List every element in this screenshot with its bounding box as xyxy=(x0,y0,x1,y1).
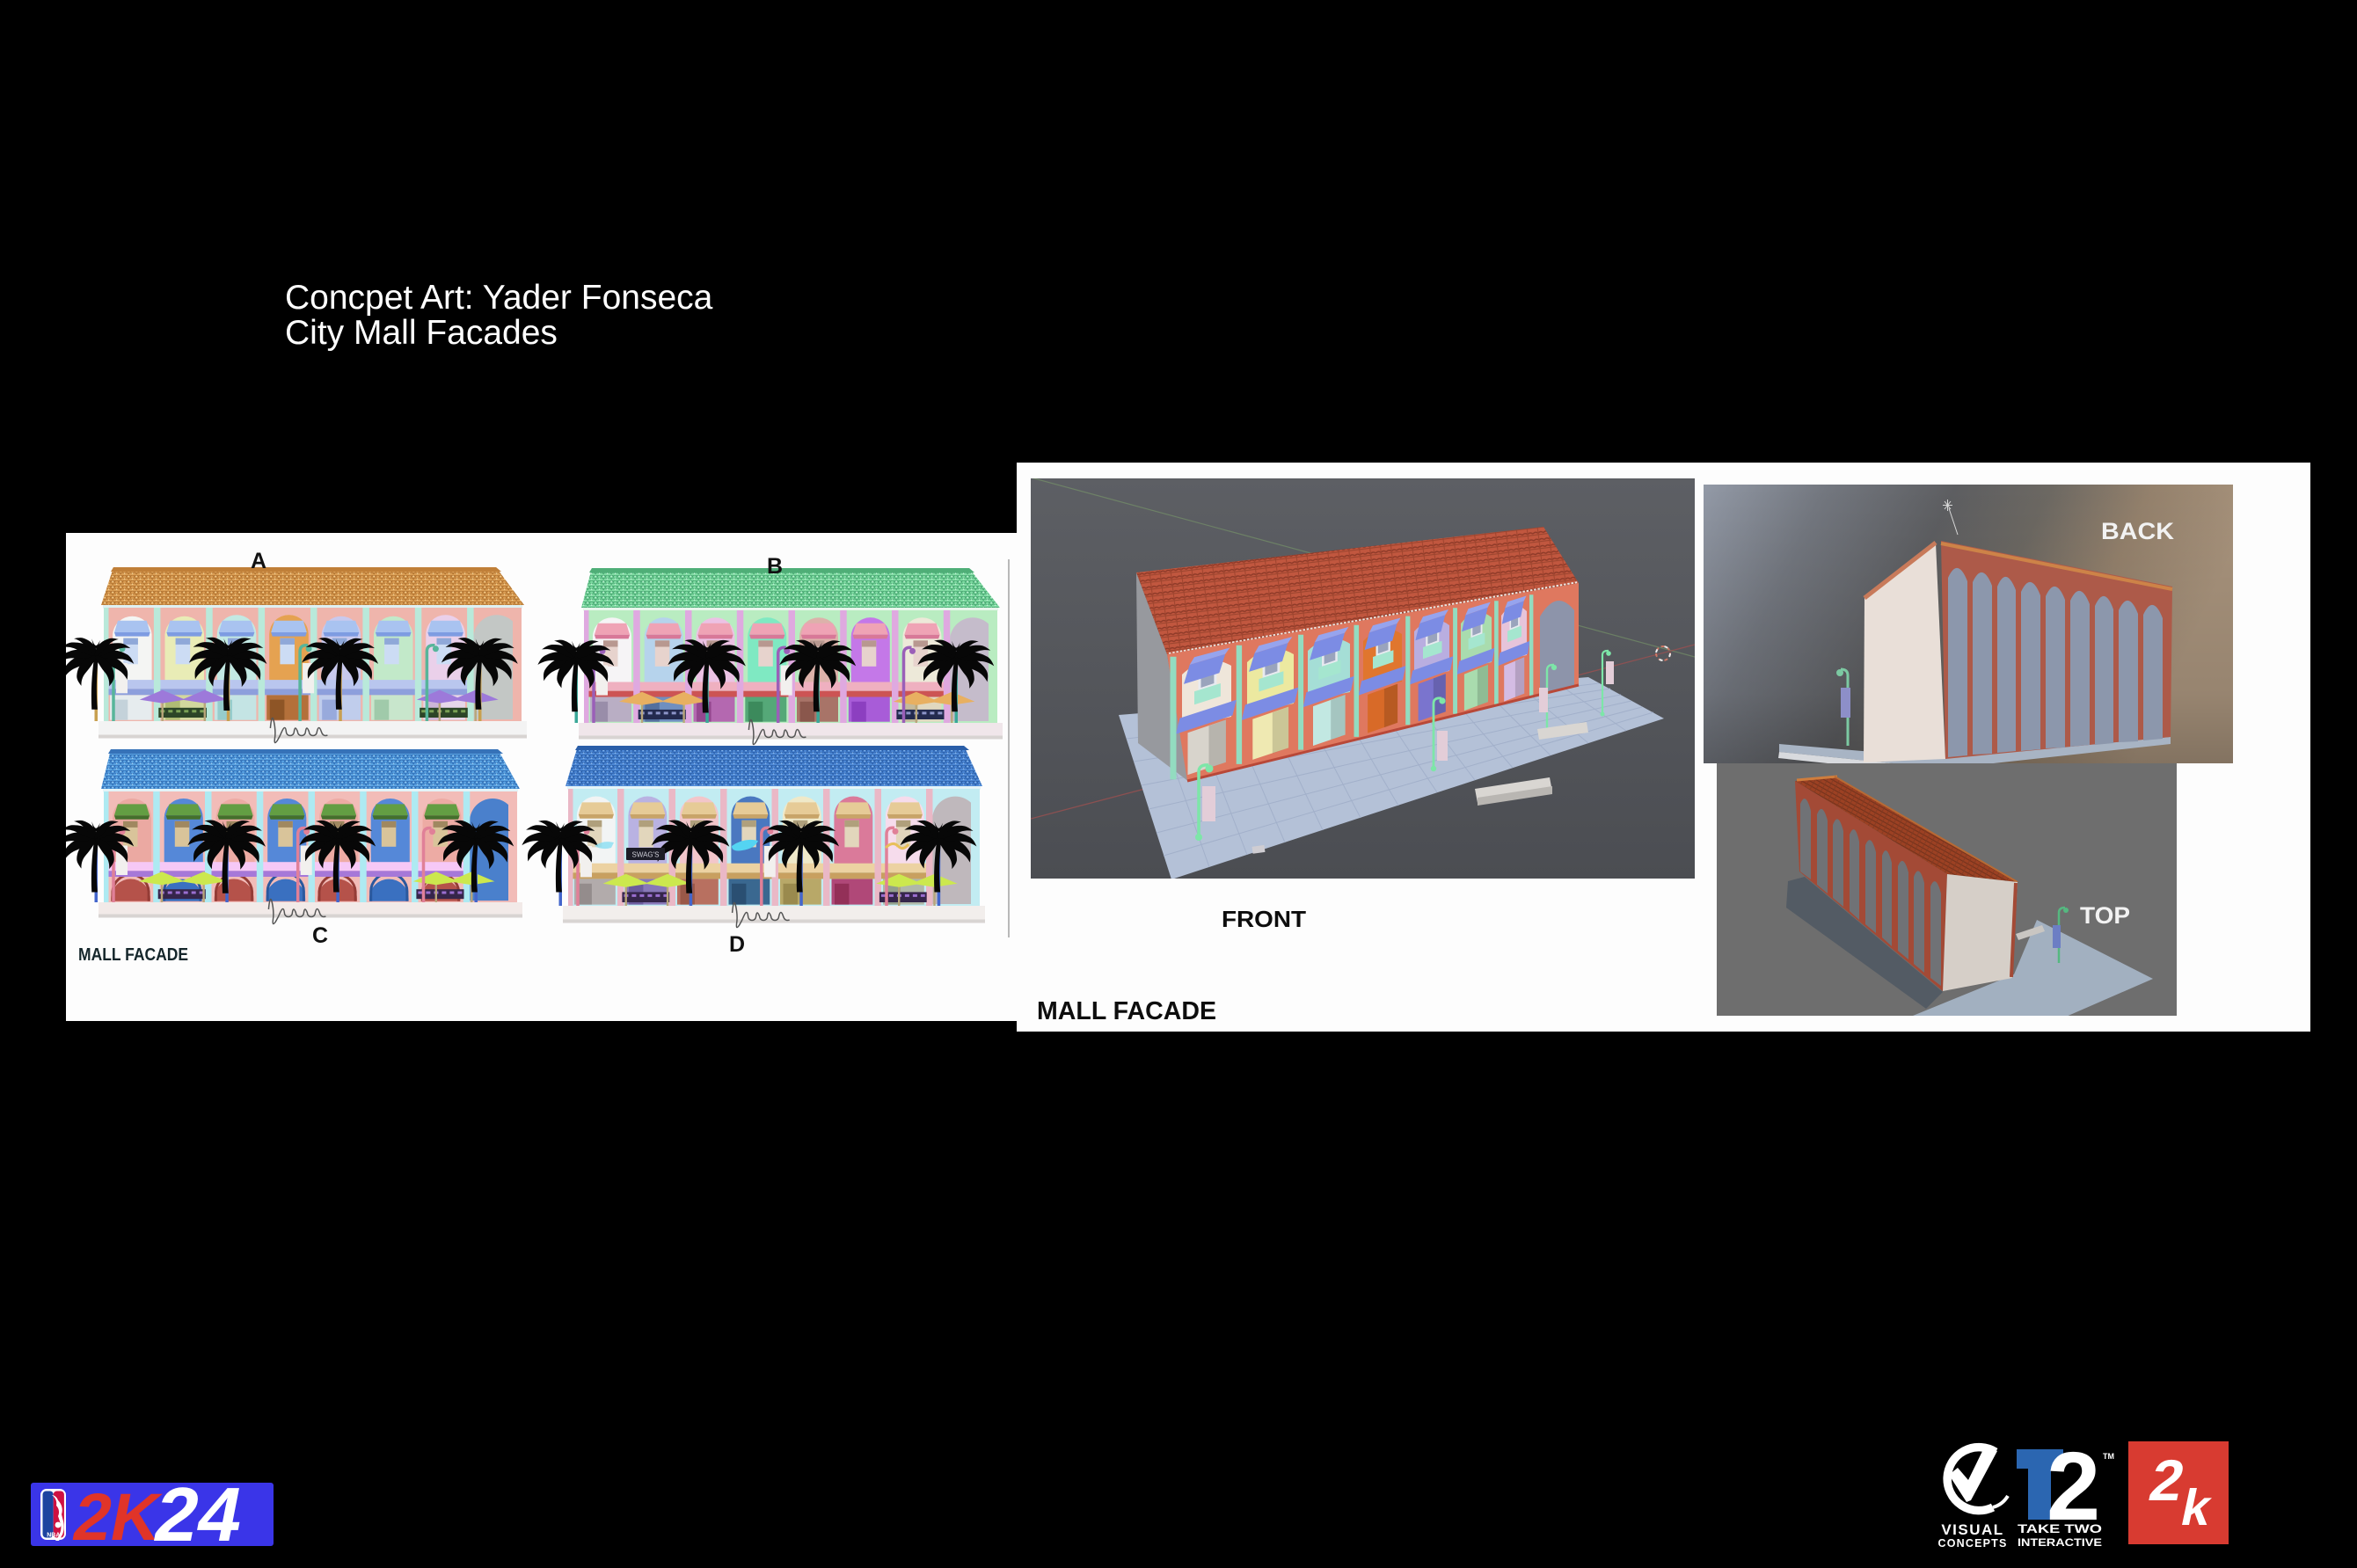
svg-text:TAKE TWO: TAKE TWO xyxy=(2018,1521,2102,1535)
svg-text:A: A xyxy=(251,549,266,573)
svg-text:SWAG'S: SWAG'S xyxy=(631,851,659,859)
svg-text:VISUAL: VISUAL xyxy=(1941,1521,2003,1538)
svg-text:INTERACTIVE: INTERACTIVE xyxy=(2018,1536,2102,1549)
svg-text:CONCEPTS: CONCEPTS xyxy=(1937,1537,2007,1550)
svg-text:24: 24 xyxy=(148,1472,250,1557)
svg-text:D: D xyxy=(729,932,745,957)
svg-text:TM: TM xyxy=(2103,1452,2114,1461)
svg-text:TOP: TOP xyxy=(2080,902,2130,929)
svg-text:FRONT: FRONT xyxy=(1222,906,1306,932)
svg-text:BACK: BACK xyxy=(2101,518,2175,544)
svg-text:B: B xyxy=(767,554,783,579)
svg-text:MALL FACADE: MALL FACADE xyxy=(1037,997,1216,1025)
svg-text:MALL FACADE: MALL FACADE xyxy=(78,945,188,965)
svg-text:C: C xyxy=(312,923,328,948)
svg-text:NBA: NBA xyxy=(47,1533,60,1539)
